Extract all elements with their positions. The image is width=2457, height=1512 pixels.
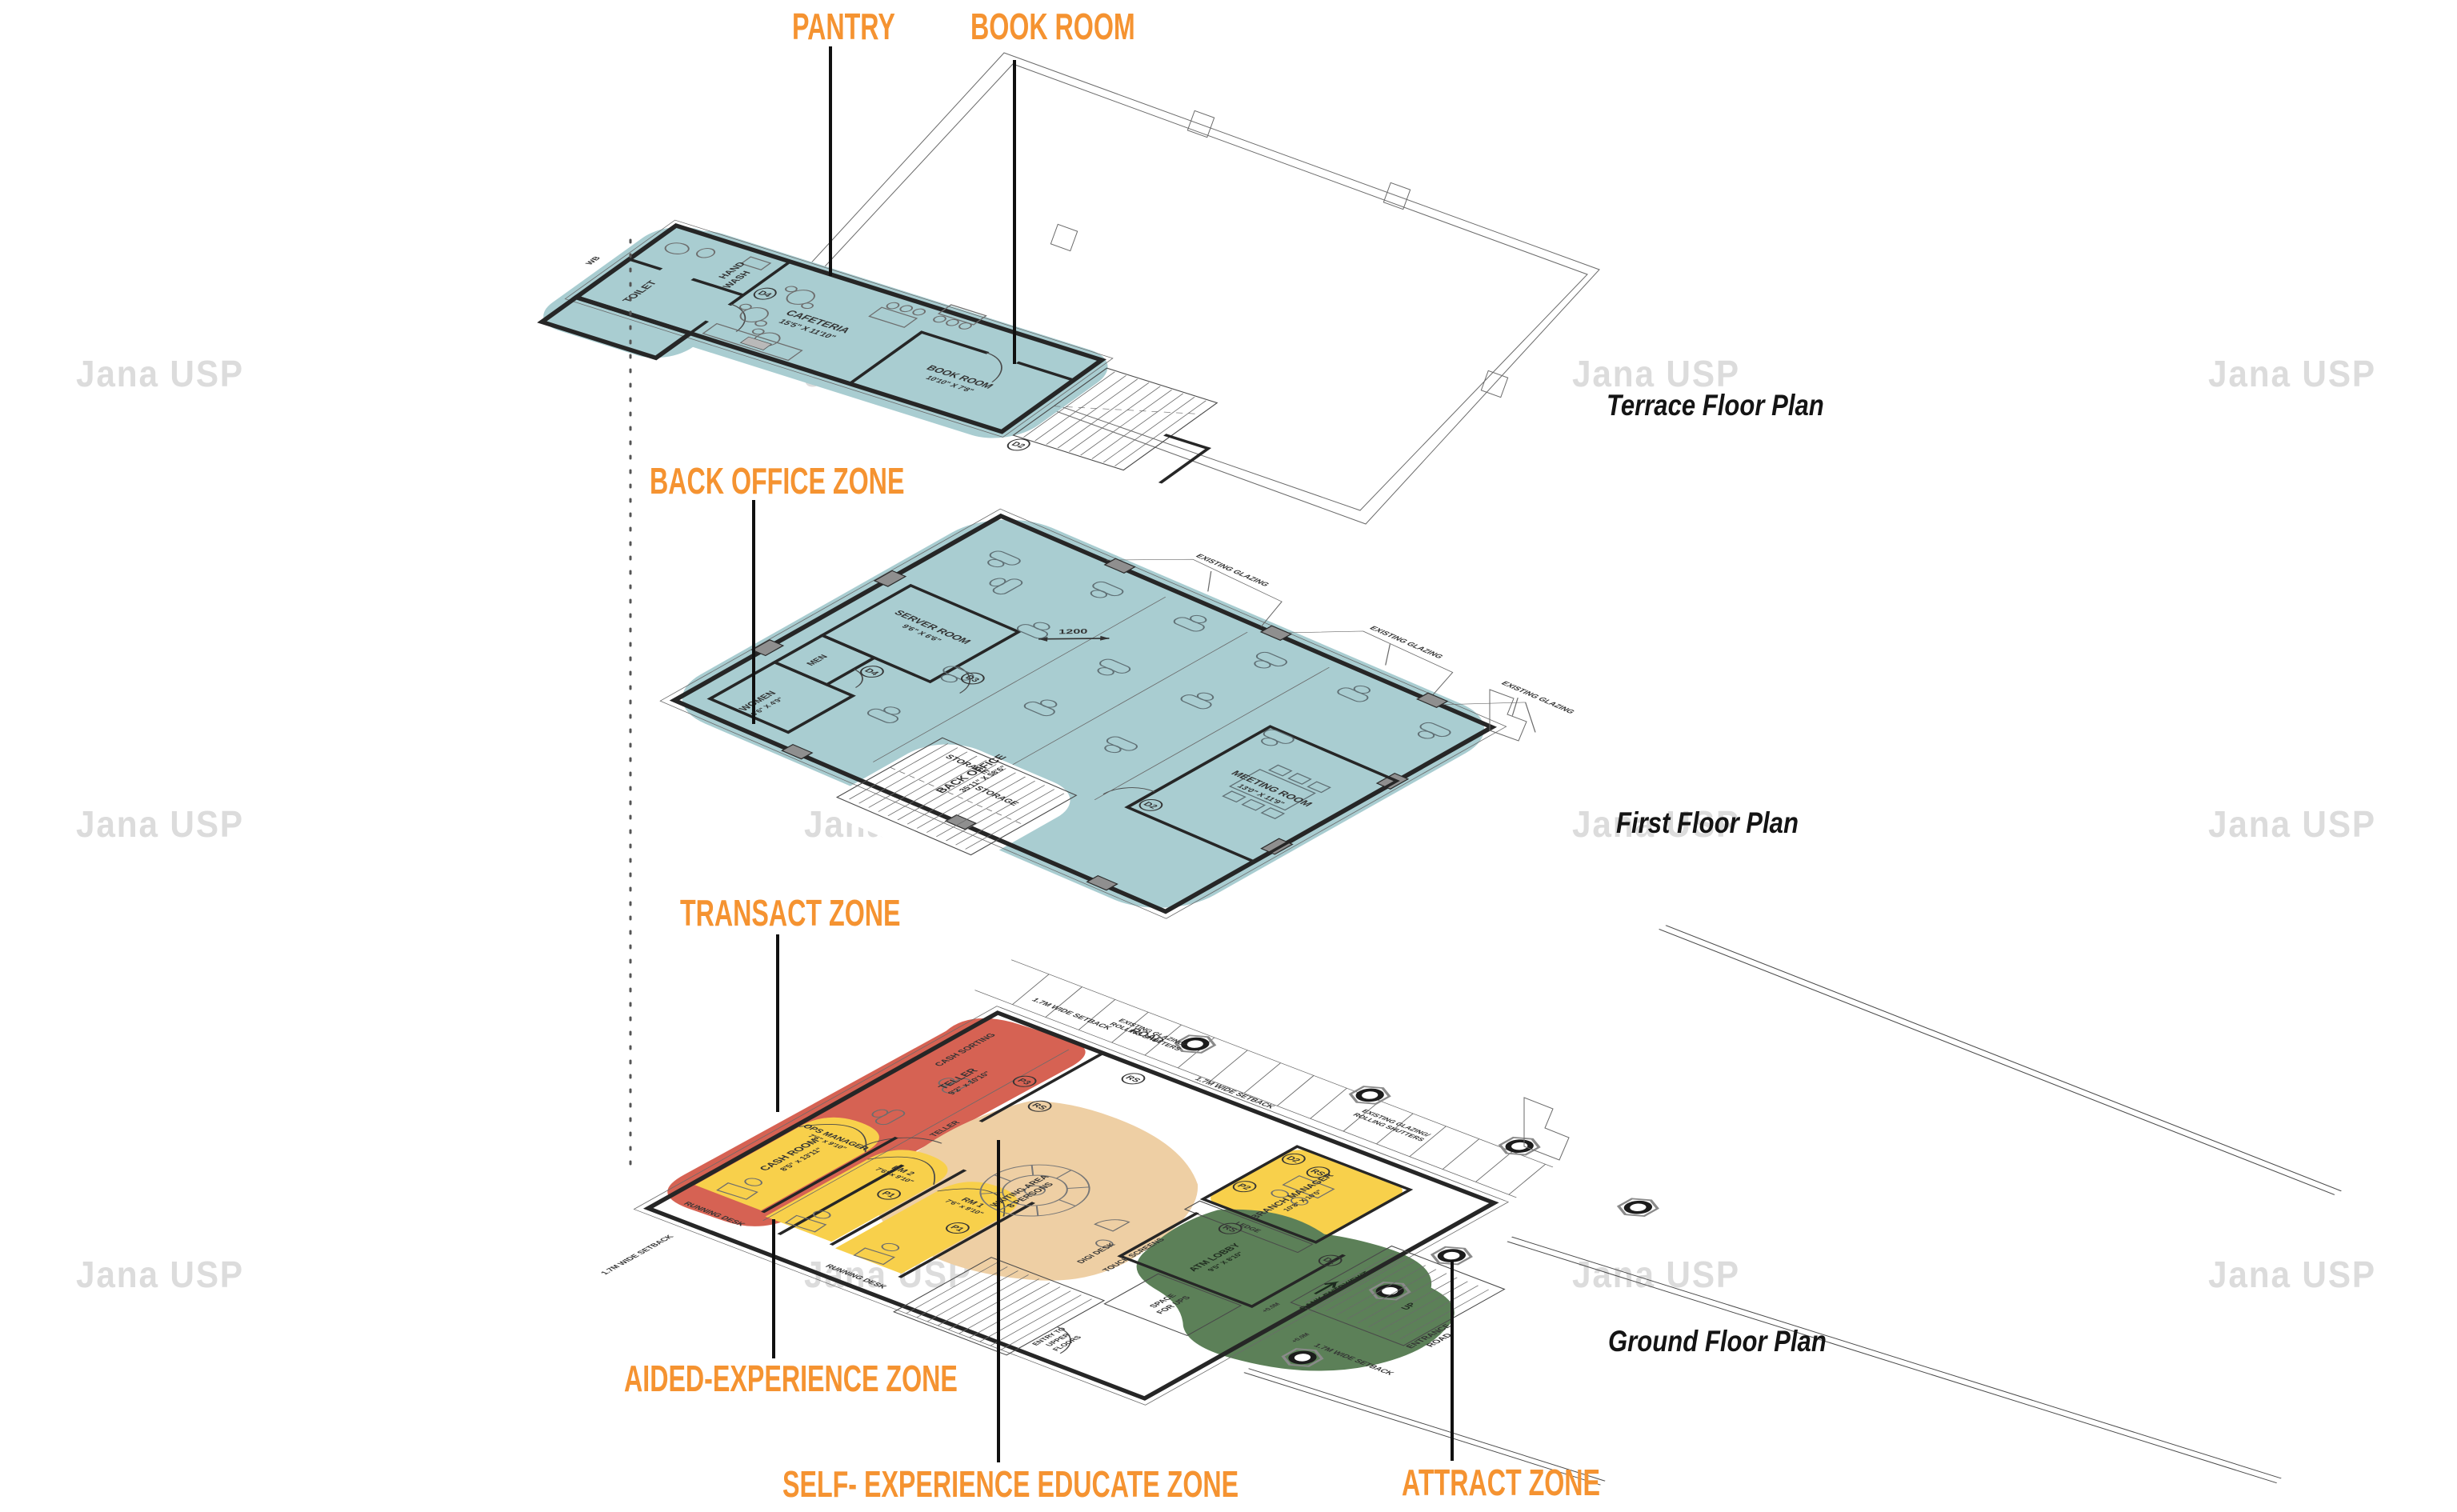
zone-label-book-room: BOOK ROOM — [970, 8, 1135, 45]
first-floor-building: STORAGE STORAGE 1200 D3 D4 D2 — [616, 482, 1577, 952]
zone-label-back-office: BACK OFFICE ZONE — [650, 462, 904, 499]
first-floor-plan: STORAGE STORAGE 1200 D3 D4 D2 — [616, 482, 1577, 952]
site-boundary-notch — [1524, 1098, 1569, 1160]
setback-label: 1.7M WIDE SETBACK — [599, 1234, 676, 1276]
existing-glazing-label: EXISTING GLAZING — [1499, 681, 1576, 715]
existing-glazing-label: EXISTING GLAZING — [1367, 626, 1445, 660]
zone-label-attract: ATTRACT ZONE — [1402, 1464, 1600, 1501]
first-floor-shaft-notch — [1490, 690, 1527, 741]
zone-label-pantry: PANTRY — [792, 8, 895, 45]
zone-label-transact: TRANSACT ZONE — [680, 894, 900, 931]
title-first-floor-plan: First Floor Plan — [1616, 806, 1799, 840]
exploded-floor-plans-diagram: D4 D2 WB TOILET HAND WASH CAFETERIA 15'5… — [0, 0, 2457, 1512]
setback-label: 1.7M WIDE SETBACK — [1029, 998, 1113, 1031]
wb-label: WB — [584, 256, 603, 266]
dim-1200-label: 1200 — [1058, 627, 1088, 635]
existing-glazing-label: EXISTING GLAZING — [1193, 554, 1271, 588]
page: { "watermark": {"text": "Jana USP"}, "co… — [0, 0, 2457, 1512]
door-tag-d2: D2 — [1003, 437, 1034, 452]
first-floor-highlight-blob — [653, 506, 1513, 922]
title-ground-floor-plan: Ground Floor Plan — [1608, 1325, 1827, 1358]
terrace-floor-plan: D4 D2 WB TOILET HAND WASH CAFETERIA 15'5… — [511, 53, 1599, 524]
zone-label-aided: AIDED-EXPERIENCE ZONE — [624, 1360, 958, 1397]
title-terrace-floor-plan: Terrace Floor Plan — [1607, 389, 1824, 422]
tag-rs: RS — [1122, 1074, 1142, 1083]
zone-label-self-exp: SELF- EXPERIENCE EDUCATE ZONE — [782, 1466, 1239, 1502]
door-tag-d2-label: D2 — [1009, 441, 1027, 450]
